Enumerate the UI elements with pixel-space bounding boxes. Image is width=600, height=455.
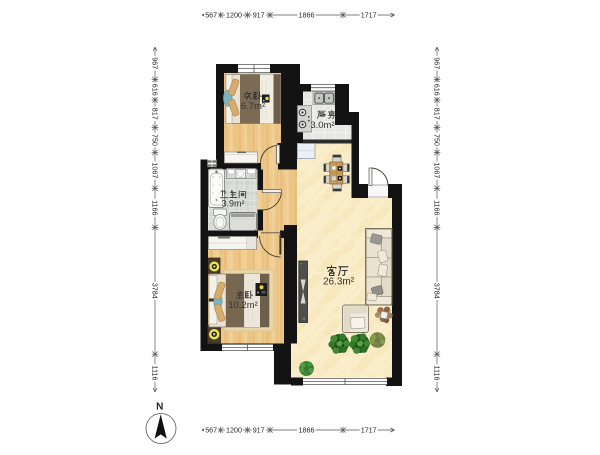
svg-text:1166: 1166 [433,200,442,215]
svg-text:3.0m²: 3.0m² [310,120,334,131]
svg-text:616: 616 [433,84,442,96]
svg-text:750: 750 [151,134,160,146]
svg-text:1200: 1200 [226,11,242,20]
svg-text:26.3m²: 26.3m² [323,277,355,288]
svg-text:1116: 1116 [433,366,442,381]
svg-text:6.7m²: 6.7m² [241,101,265,112]
svg-text:567: 567 [205,426,217,435]
svg-text:10.2m²: 10.2m² [228,300,258,311]
svg-text:N: N [156,402,163,413]
svg-text:917: 917 [253,11,265,20]
svg-text:1116: 1116 [151,366,160,381]
svg-text:1200: 1200 [226,426,242,435]
svg-text:1866: 1866 [299,11,315,20]
svg-text:567: 567 [205,11,217,20]
svg-text:3784: 3784 [151,283,160,299]
svg-text:1717: 1717 [361,426,377,435]
svg-text:3784: 3784 [433,283,442,299]
svg-text:817: 817 [433,108,442,120]
svg-text:3.9m²: 3.9m² [221,199,244,209]
svg-text:1166: 1166 [151,200,160,215]
svg-text:1717: 1717 [361,11,377,20]
svg-text:616: 616 [151,84,160,96]
svg-text:1067: 1067 [433,162,442,178]
svg-text:1866: 1866 [299,426,315,435]
svg-text:817: 817 [151,108,160,120]
svg-text:917: 917 [253,426,265,435]
svg-text:967: 967 [433,57,442,69]
svg-text:967: 967 [151,57,160,69]
svg-text:1067: 1067 [151,162,160,178]
svg-text:750: 750 [433,134,442,146]
